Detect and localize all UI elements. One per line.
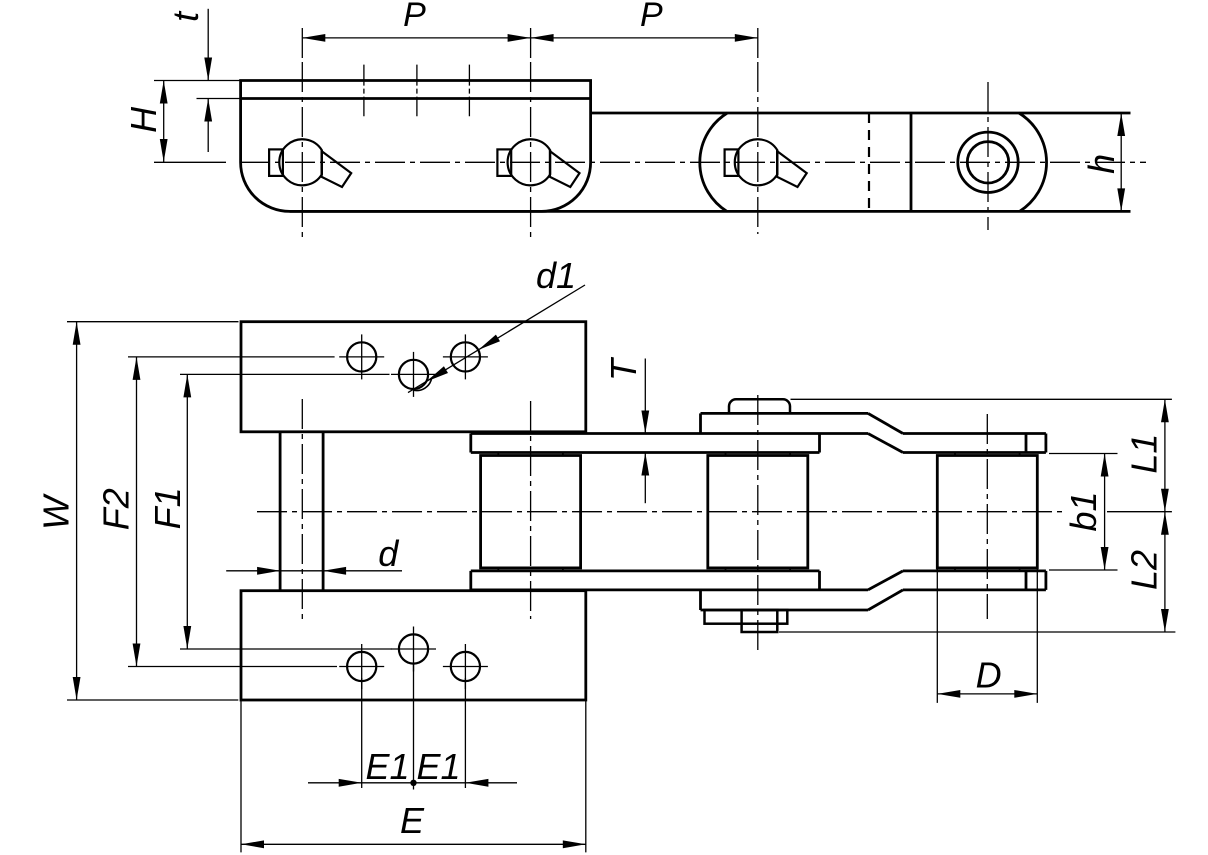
svg-text:L1: L1: [1124, 434, 1165, 474]
svg-text:d: d: [378, 533, 399, 574]
svg-text:d1: d1: [536, 255, 576, 296]
svg-text:E1: E1: [416, 746, 460, 787]
svg-text:T: T: [603, 356, 644, 381]
svg-text:E1: E1: [365, 746, 409, 787]
svg-text:D: D: [976, 655, 1002, 696]
svg-text:b1: b1: [1063, 491, 1104, 531]
svg-text:P: P: [640, 0, 663, 34]
svg-text:L2: L2: [1124, 550, 1165, 590]
svg-text:H: H: [123, 106, 164, 133]
svg-text:E: E: [400, 800, 425, 841]
svg-text:P: P: [403, 0, 426, 34]
svg-text:W: W: [36, 493, 77, 530]
svg-text:F2: F2: [96, 488, 137, 530]
svg-text:F1: F1: [147, 487, 188, 529]
svg-text:h: h: [1081, 154, 1122, 174]
